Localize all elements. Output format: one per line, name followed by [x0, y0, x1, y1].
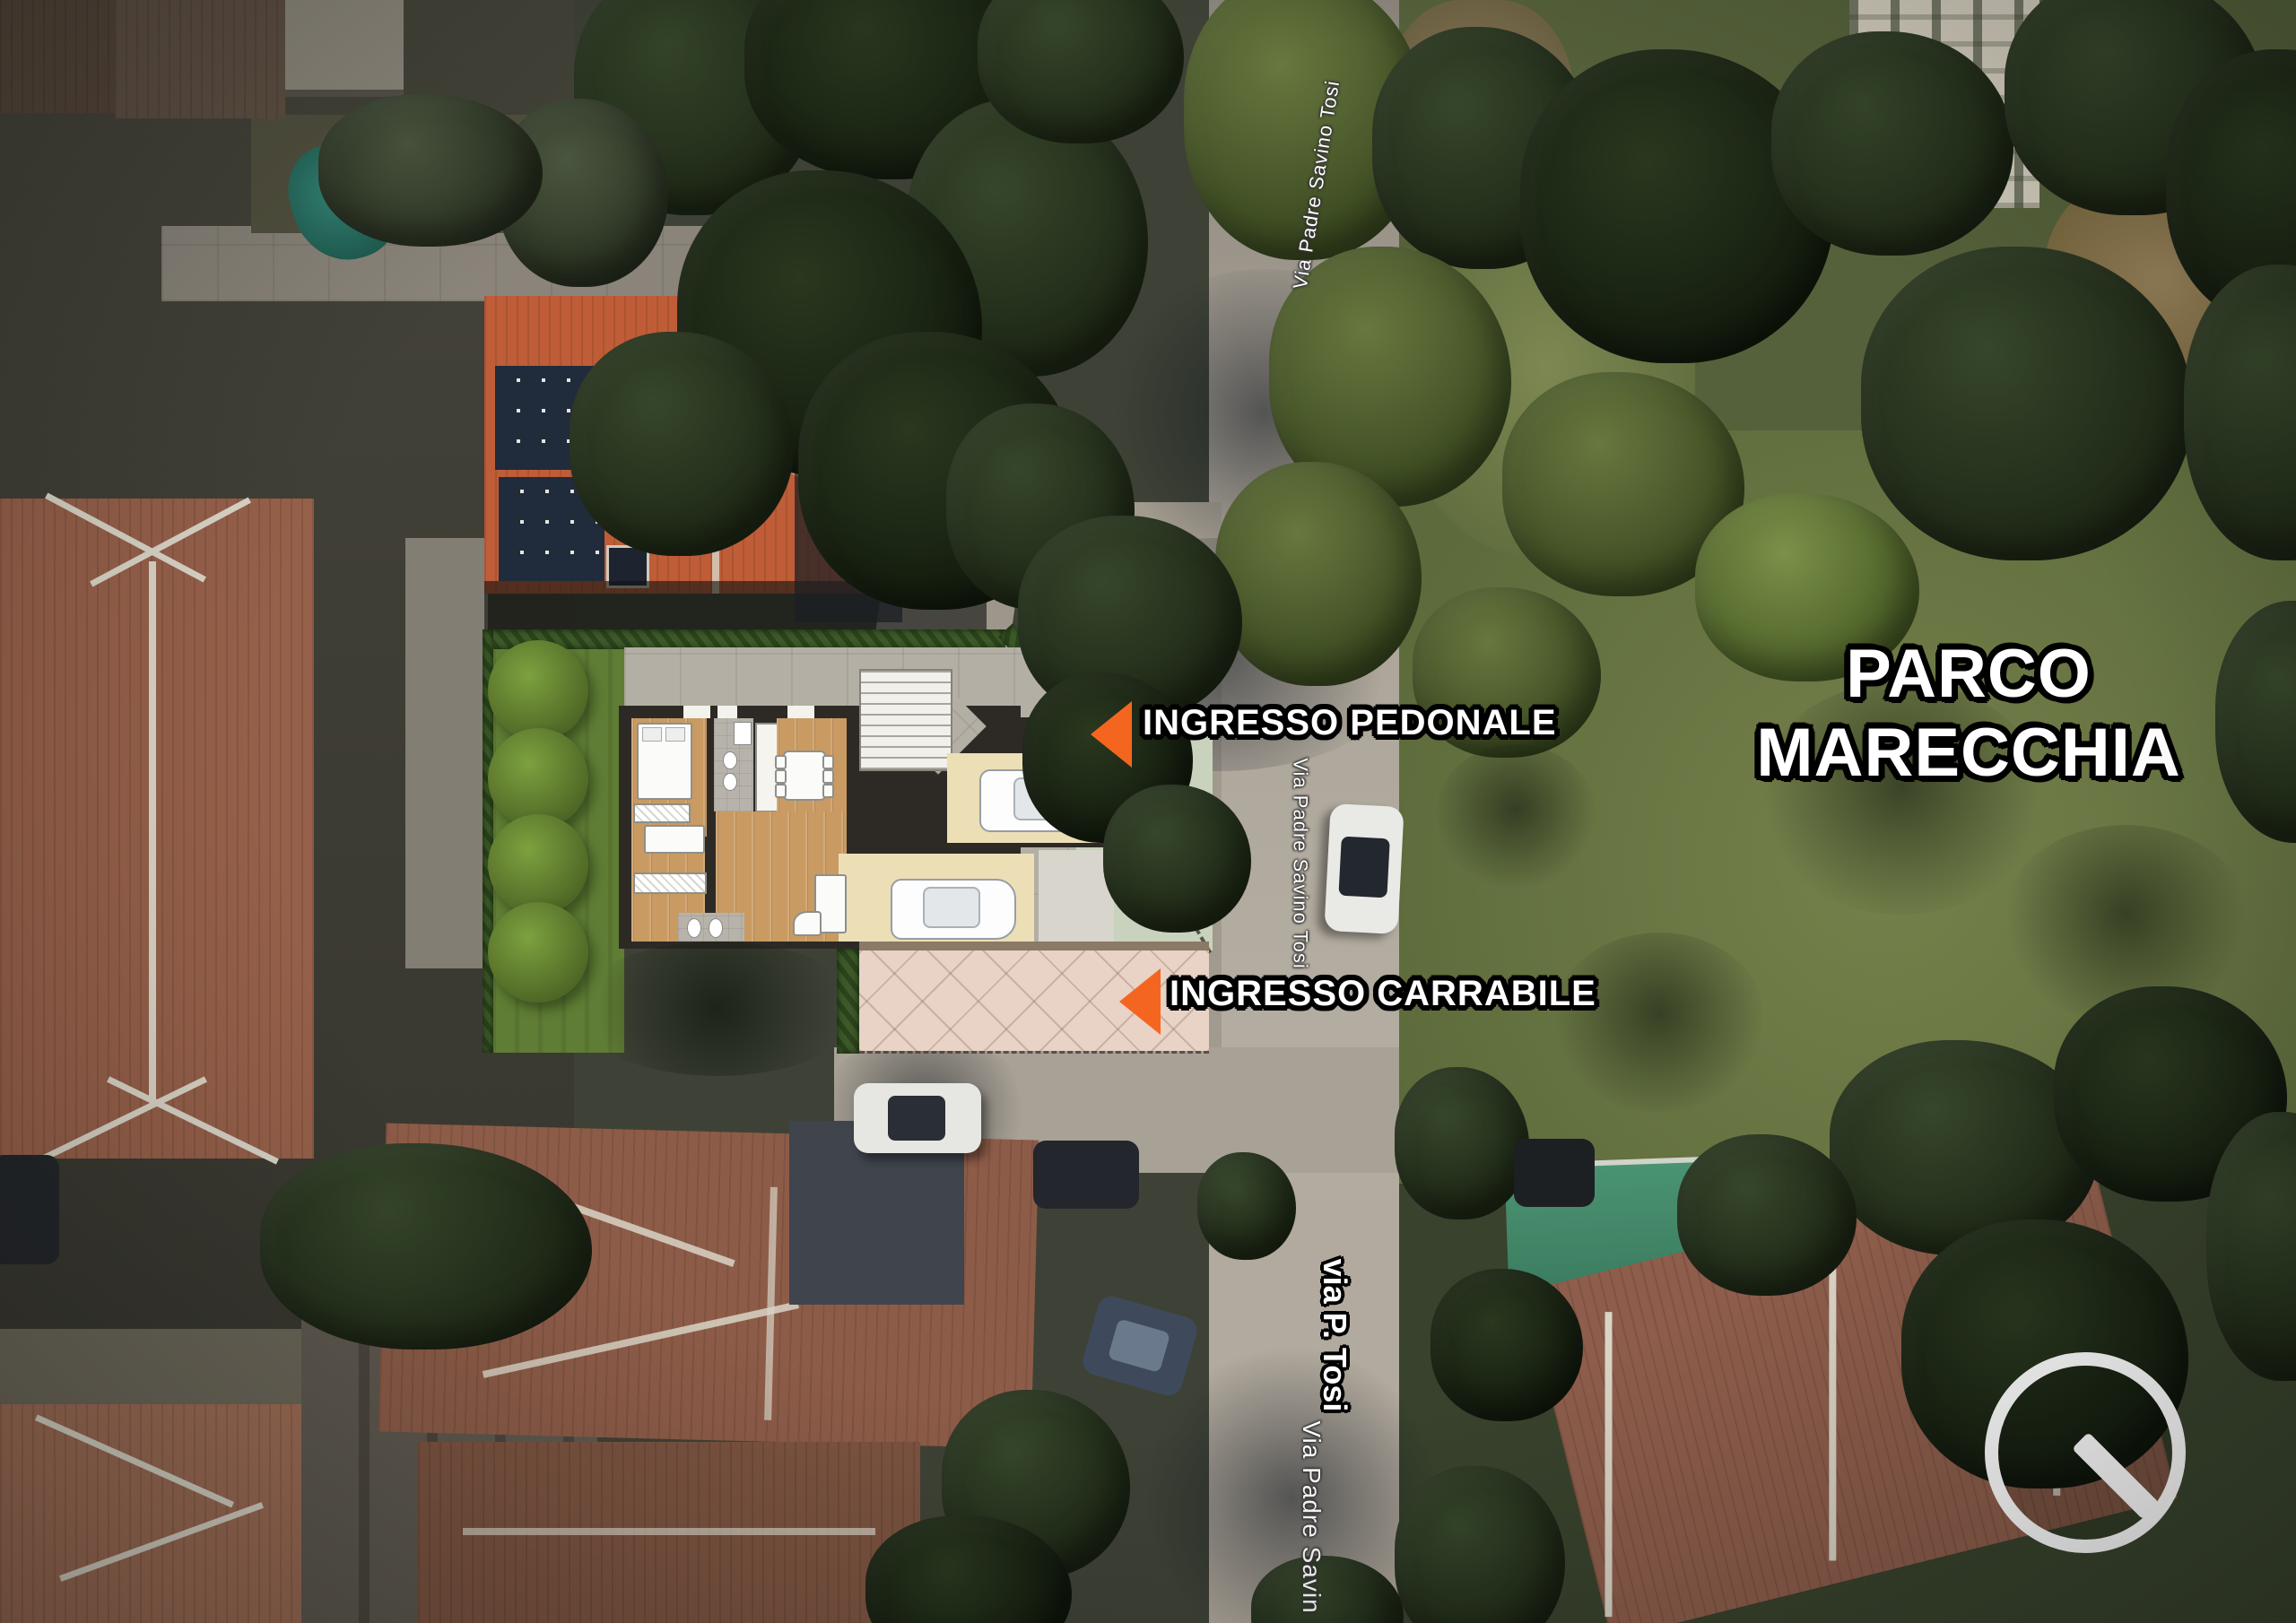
dining-chair	[775, 769, 787, 784]
plan-hedge-top	[487, 629, 1005, 649]
dark-car-parked	[1033, 1141, 1139, 1209]
park-name-label: PARCO MARECCHIA	[1744, 635, 2193, 793]
pedestrian-entrance-label: INGRESSO PEDONALE	[1143, 703, 1557, 742]
dark-car-by-teal-roof	[1514, 1139, 1595, 1207]
garden-tree	[488, 640, 588, 741]
roof-ridge	[1605, 1312, 1612, 1617]
dining-chair	[822, 769, 834, 784]
roof-ridge	[90, 497, 251, 586]
roof-ridge	[107, 1076, 279, 1164]
building-grey-bottom-left	[0, 1329, 305, 1410]
plan-double-bed	[637, 723, 692, 800]
plan-driveway-curb	[859, 942, 1209, 950]
dining-chair	[775, 755, 787, 769]
roof-ridge	[463, 1528, 875, 1535]
bush	[1197, 1152, 1296, 1260]
dark-car-left-edge	[0, 1155, 59, 1264]
dining-chair	[822, 784, 834, 798]
plan-stairs	[859, 669, 952, 771]
white-car-parked	[854, 1083, 981, 1153]
tree-band-left	[260, 1143, 592, 1350]
plan-wardrobe	[633, 872, 707, 894]
plan-window	[717, 706, 737, 718]
park-name-line2: MARECCHIA	[1744, 714, 2193, 793]
building-left-hip-roof	[0, 499, 314, 1159]
bath-sink	[734, 722, 752, 745]
roof-ridge	[59, 1502, 264, 1582]
bush	[1431, 1269, 1583, 1421]
driveway-entrance-label: INGRESSO CARRABILE	[1170, 974, 1596, 1013]
white-car-on-road	[1324, 803, 1404, 934]
tree-shadow	[1552, 933, 1767, 1112]
tree-shadow	[1435, 744, 1596, 888]
driveway-entrance-arrow-icon	[1119, 968, 1161, 1035]
bath-fixture	[723, 773, 737, 791]
aerial-site-plan-map: INGRESSO PEDONALE INGRESSO CARRABILE PAR…	[0, 0, 2296, 1623]
tree	[318, 94, 543, 247]
bath-fixture	[709, 918, 723, 938]
garden-tree	[488, 814, 588, 915]
roof-ridge	[35, 1076, 207, 1164]
car-roof	[1338, 837, 1389, 898]
shadow-below-house	[574, 942, 861, 1076]
plan-driveway-edge-dashed	[859, 1051, 1209, 1054]
roof-ridge	[149, 561, 156, 1099]
garden-tree	[488, 902, 588, 1002]
roof-ridge	[764, 1187, 778, 1420]
tree	[1103, 785, 1251, 933]
park-name-line1: PARCO	[1744, 635, 2193, 714]
bush	[1395, 1067, 1529, 1219]
tree	[1677, 1134, 1857, 1296]
roof-dark-top-corner	[0, 0, 126, 113]
plan-single-bed	[644, 825, 705, 854]
car-roof	[1108, 1318, 1170, 1373]
dining-chair	[822, 755, 834, 769]
bath-fixture	[723, 751, 737, 769]
street-label-mid: Via Padre Savino Tosi	[1289, 750, 1312, 978]
plan-wardrobe	[633, 803, 691, 823]
neighbor-driveway-strip	[405, 538, 488, 968]
plan-window	[787, 706, 814, 718]
plan-car-lower	[891, 879, 1013, 936]
street-label-cross: via P. Tosi	[1316, 1245, 1353, 1425]
roof-dark-top-left	[115, 0, 285, 118]
bed-pillow	[642, 727, 662, 742]
plan-dining-table	[783, 751, 826, 801]
street-label-bottom: Via Padre Savin	[1297, 1401, 1326, 1623]
building-bottom-center-roof-lower	[418, 1442, 920, 1623]
pedestrian-entrance-arrow-icon	[1091, 701, 1132, 768]
bath-fixture	[687, 918, 701, 938]
car-roof	[888, 1096, 945, 1141]
roof-salmon-bottom-left	[0, 1404, 301, 1623]
plan-sofa-corner	[793, 911, 822, 936]
plan-window	[683, 706, 710, 718]
roof-ridge	[1829, 1238, 1836, 1561]
plan-paving	[624, 647, 1069, 710]
roof-ridge	[35, 1414, 234, 1507]
bed-pillow	[665, 727, 685, 742]
dining-chair	[775, 784, 787, 798]
